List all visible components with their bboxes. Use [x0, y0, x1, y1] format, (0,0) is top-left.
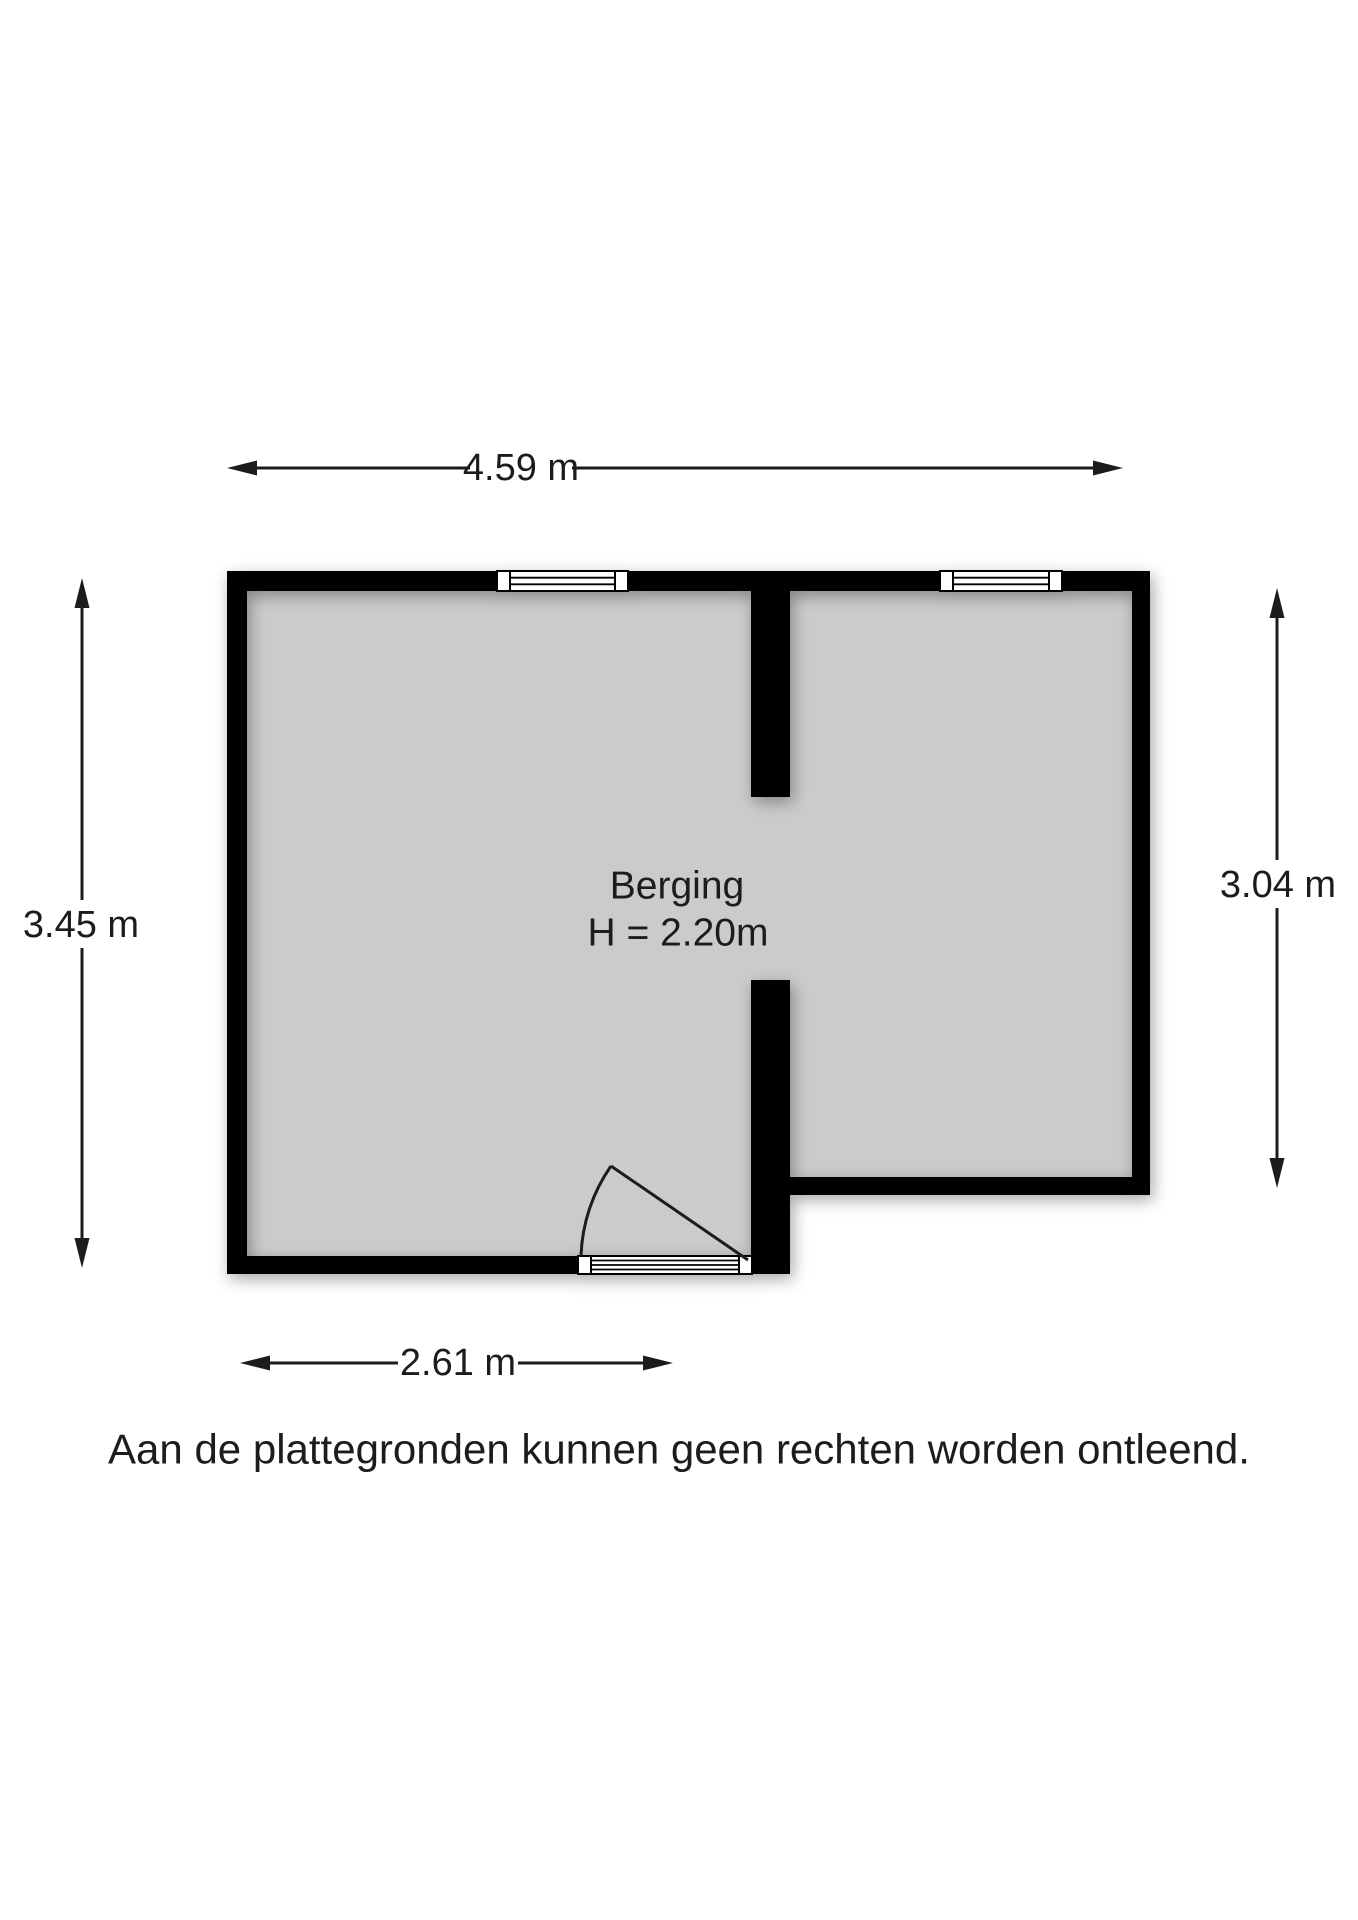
arrowhead-right-icon: [643, 1356, 673, 1371]
arrowhead-left-icon: [240, 1356, 270, 1371]
arrowhead-down-icon: [1270, 1158, 1285, 1188]
floorplan-page: 4.59 m 3.45 m 3.04 m 2.61 m: [0, 0, 1358, 1920]
arrowhead-up-icon: [75, 578, 90, 608]
floorplan-drawing: 4.59 m 3.45 m 3.04 m 2.61 m: [0, 0, 1358, 1920]
arrowhead-down-icon: [75, 1238, 90, 1268]
wall-partition-lower: [751, 980, 790, 1274]
wall-right: [1132, 571, 1150, 1195]
window-symbol-right: [940, 571, 1062, 591]
arrowhead-up-icon: [1270, 588, 1285, 618]
wall-bottom-left: [227, 1256, 578, 1274]
arrowhead-right-icon: [1093, 461, 1123, 476]
dimension-bottom: 2.61 m: [240, 1342, 673, 1384]
door-threshold-symbol: [578, 1256, 752, 1274]
dimension-right-label: 3.04 m: [1220, 864, 1336, 906]
wall-left: [227, 571, 247, 1274]
dimension-top: 4.59 m: [227, 447, 1123, 489]
room-ceiling-height-label: H = 2.20m: [587, 912, 768, 955]
dimension-right: 3.04 m: [1220, 588, 1336, 1188]
wall-partition-upper: [751, 591, 790, 797]
window-symbol-left: [497, 571, 628, 591]
dimension-left-label: 3.45 m: [23, 904, 139, 946]
disclaimer-text: Aan de plattegronden kunnen geen rechten…: [108, 1426, 1250, 1473]
dimension-left: 3.45 m: [23, 578, 139, 1268]
dimension-bottom-label: 2.61 m: [400, 1342, 516, 1384]
dimension-top-label: 4.59 m: [463, 447, 579, 489]
room-name-label: Berging: [610, 865, 744, 908]
wall-bottom-right: [788, 1177, 1150, 1195]
arrowhead-left-icon: [227, 461, 257, 476]
